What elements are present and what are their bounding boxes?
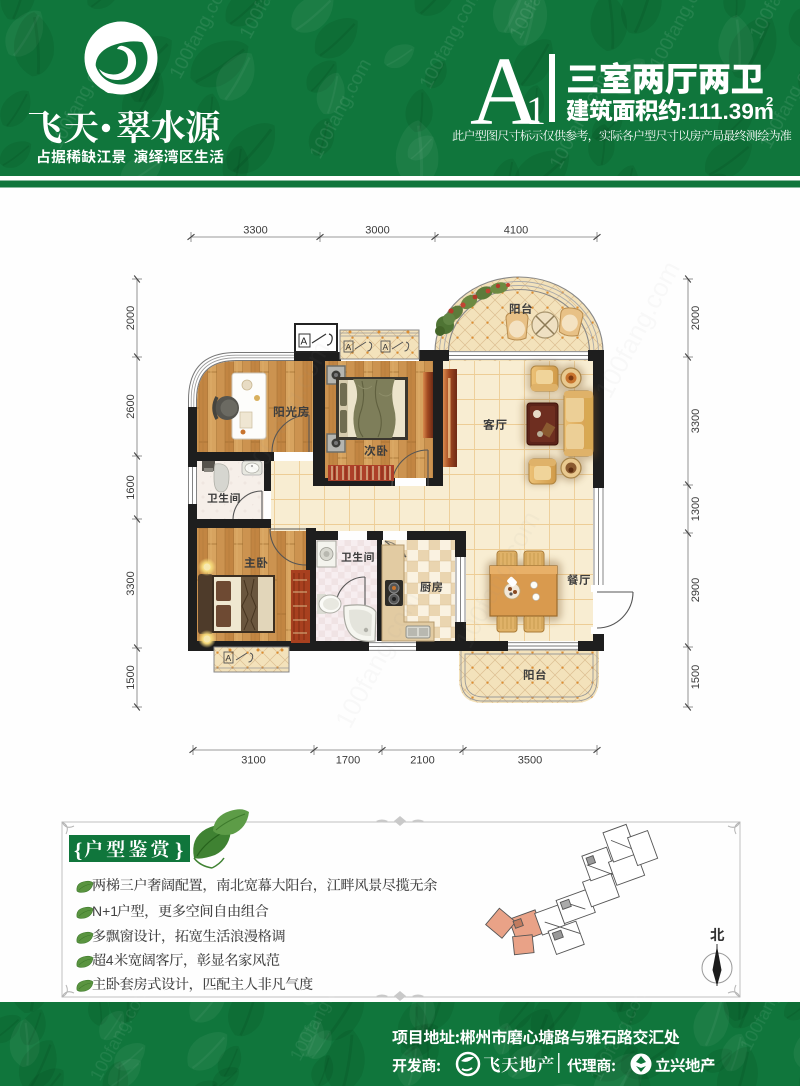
- svg-text:2900: 2900: [690, 578, 702, 602]
- svg-text:4100: 4100: [504, 225, 528, 237]
- svg-text:1700: 1700: [336, 755, 360, 767]
- svg-text:3000: 3000: [365, 225, 389, 237]
- svg-text:A: A: [383, 342, 389, 352]
- svg-text:1500: 1500: [690, 665, 702, 689]
- svg-text:1500: 1500: [125, 665, 137, 689]
- svg-text:1: 1: [526, 88, 546, 133]
- svg-text:1600: 1600: [125, 475, 137, 499]
- svg-text:1300: 1300: [690, 497, 702, 521]
- svg-text:2100: 2100: [410, 755, 434, 767]
- svg-text:3300: 3300: [690, 409, 702, 433]
- svg-text:2: 2: [766, 94, 773, 109]
- svg-text:3300: 3300: [125, 571, 137, 595]
- svg-text:A: A: [346, 342, 352, 352]
- svg-text:2000: 2000: [125, 306, 137, 330]
- svg-text:{: {: [74, 838, 82, 862]
- svg-text:A: A: [226, 653, 232, 663]
- svg-text::111.39m: :111.39m: [680, 99, 774, 124]
- svg-text:3500: 3500: [518, 755, 542, 767]
- svg-text:3100: 3100: [241, 755, 265, 767]
- svg-text:N+1: N+1: [92, 903, 118, 919]
- svg-text:}: }: [175, 838, 183, 862]
- svg-text:2000: 2000: [690, 306, 702, 330]
- svg-text:4: 4: [106, 952, 114, 968]
- svg-text:2600: 2600: [125, 394, 137, 418]
- svg-text:3300: 3300: [243, 225, 267, 237]
